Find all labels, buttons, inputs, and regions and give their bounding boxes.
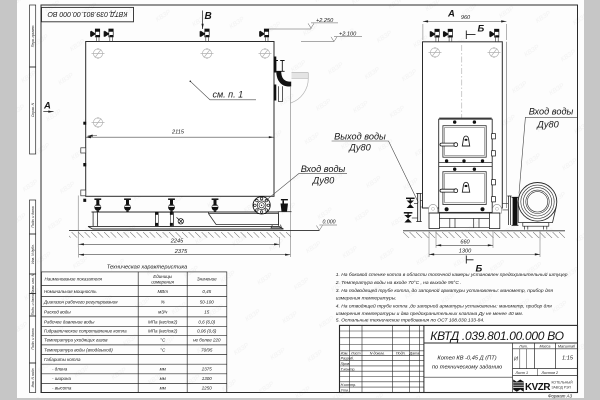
svg-text:50-100: 50-100: [200, 299, 215, 304]
svg-text:°С: °С: [160, 338, 166, 343]
svg-text:Температура воды (вход/выход): Температура воды (вход/выход): [44, 347, 113, 352]
svg-text:Масштаб: Масштаб: [558, 345, 576, 349]
svg-text:3. На подводящей трубе котла,: 3. На подводящей трубе котла, до запорно…: [336, 287, 554, 294]
svg-text:Диапазон рабочего регулировани: Диапазон рабочего регулирования: [43, 299, 118, 304]
svg-text:Ду80: Ду80: [312, 176, 335, 186]
svg-text:Подп. и дата: Подп. и дата: [31, 294, 35, 315]
svg-text:мм: мм: [160, 376, 166, 381]
svg-text:- длина: - длина: [52, 367, 68, 372]
svg-text:МВт: МВт: [157, 289, 168, 294]
svg-text:Котел КВ -0,45 Д (ПТ): Котел КВ -0,45 Д (ПТ): [437, 356, 496, 362]
svg-text:Формат А3: Формат А3: [548, 394, 573, 399]
svg-text:4. На отводящей трубе котла ,: 4. На отводящей трубе котла ,до запорной…: [336, 303, 552, 310]
svg-text:Вход воды: Вход воды: [529, 107, 574, 117]
svg-text:МПа (кгс/см2): МПа (кгс/см2): [148, 320, 178, 325]
svg-text:Инв. N подл.: Инв. N подл.: [31, 368, 35, 388]
svg-text:Наименование показателя: Наименование показателя: [45, 277, 103, 282]
svg-text:Подп. и дата: Подп. и дата: [31, 206, 35, 227]
svg-text:Инв. N дубл.: Инв. N дубл.: [31, 244, 35, 264]
svg-text:измерения: измерения: [151, 280, 174, 285]
svg-text:2245: 2245: [170, 239, 184, 245]
svg-text:Техническая характеристика: Техническая характеристика: [107, 265, 188, 271]
svg-text:2115: 2115: [171, 130, 185, 136]
svg-text:А: А: [43, 101, 51, 112]
svg-text:В: В: [205, 11, 212, 22]
svg-text:Справ. N: Справ. N: [31, 102, 35, 117]
svg-text:см. п. 1: см. п. 1: [213, 89, 244, 99]
svg-text:Б: Б: [478, 24, 485, 35]
svg-text:1300: 1300: [459, 249, 472, 255]
svg-text:Подп. и дата: Подп. и дата: [31, 328, 35, 349]
svg-text:0,45: 0,45: [202, 289, 211, 294]
svg-text:не более 220: не более 220: [193, 338, 221, 343]
svg-text:Перв. примен.: Перв. примен.: [31, 25, 35, 48]
svg-text:А: А: [447, 8, 455, 19]
svg-text:Значение: Значение: [197, 277, 217, 282]
svg-text:Н.контр.: Н.контр.: [341, 383, 357, 387]
svg-text:м3/ч: м3/ч: [158, 310, 168, 315]
svg-text:Подп.: Подп.: [396, 351, 406, 355]
svg-text:мм: мм: [160, 367, 166, 372]
svg-text:Вход воды: Вход воды: [301, 164, 346, 174]
svg-text:измерения температуры.: измерения температуры.: [336, 297, 397, 302]
svg-text:Пров.: Пров.: [341, 362, 351, 366]
svg-text:1300: 1300: [202, 376, 213, 381]
svg-text:KVZR: KVZR: [525, 382, 550, 393]
svg-text:ЗАВОД РЭП: ЗАВОД РЭП: [552, 386, 572, 390]
svg-text:Дата: Дата: [409, 351, 420, 355]
svg-text:Взам. инв. N: Взам. инв. N: [31, 273, 35, 293]
svg-text:2375: 2375: [201, 367, 213, 372]
svg-text:15: 15: [204, 310, 210, 315]
svg-text:N докум.: N докум.: [370, 351, 385, 355]
svg-text:Ду80: Ду80: [536, 120, 559, 130]
svg-text:2250: 2250: [201, 385, 213, 390]
svg-text:измерения температуры и два пр: измерения температуры и два предохраните…: [336, 311, 523, 317]
svg-text:Лит.: Лит.: [518, 345, 528, 349]
svg-text:по техническому заданию: по техническому заданию: [432, 364, 503, 370]
svg-text:Единицы: Единицы: [153, 274, 173, 279]
svg-text:И: И: [514, 357, 518, 363]
svg-text:- ширина: - ширина: [52, 376, 71, 381]
svg-text:МПа (кгс/см2): МПа (кгс/см2): [148, 329, 178, 334]
svg-text:960: 960: [461, 15, 471, 21]
svg-text:Габариты котла: Габариты котла: [44, 357, 81, 362]
svg-text:Температура уходящих газов: Температура уходящих газов: [44, 338, 108, 343]
svg-text:1. На боковой стенке котла в: 1. На боковой стенке котла в области топ…: [336, 271, 568, 278]
svg-text:КОТЕЛЬНЫЙ: КОТЕЛЬНЫЙ: [552, 381, 574, 385]
svg-text:0,06 (0,6): 0,06 (0,6): [197, 329, 217, 334]
svg-text:660: 660: [460, 240, 470, 246]
svg-text:0.000: 0.000: [323, 219, 336, 225]
svg-text:%: %: [161, 299, 165, 304]
svg-text:+2.250: +2.250: [316, 18, 334, 24]
svg-text:5. Остальные технические треб: 5. Остальные технические требования по О…: [336, 318, 485, 324]
svg-text:Изм.: Изм.: [341, 351, 349, 355]
svg-text:1:15: 1:15: [562, 356, 574, 362]
svg-text:КВТД .039.801.00.000 ВО: КВТД .039.801.00.000 ВО: [430, 329, 563, 343]
svg-text:0,6 (6,0): 0,6 (6,0): [198, 320, 215, 325]
svg-text:Лист 1: Лист 1: [515, 371, 529, 375]
svg-text:мм: мм: [160, 385, 166, 390]
svg-text:- высота: - высота: [52, 385, 72, 390]
svg-text:°С: °С: [160, 347, 166, 352]
svg-text:КВТД.039.801.00.000 ВО: КВТД.039.801.00.000 ВО: [47, 10, 127, 17]
svg-text:Ду80: Ду80: [348, 143, 371, 153]
svg-text:Расход воды: Расход воды: [44, 310, 71, 315]
svg-text:Масса: Масса: [540, 345, 551, 349]
svg-text:Рабочее давление воды: Рабочее давление воды: [44, 320, 95, 325]
svg-text:Утв.: Утв.: [341, 389, 349, 393]
svg-text:Разраб.: Разраб.: [341, 357, 354, 361]
svg-text:+2.100: +2.100: [339, 31, 357, 37]
svg-text:Т.контр.: Т.контр.: [341, 367, 356, 371]
svg-text:Лист: Лист: [350, 351, 361, 355]
svg-text:Номинальная мощность: Номинальная мощность: [44, 289, 97, 294]
svg-text:2375: 2375: [174, 249, 188, 255]
svg-text:Выход воды: Выход воды: [334, 131, 386, 141]
svg-text:70/95: 70/95: [201, 347, 213, 352]
svg-text:Гидравлическое сопротивление к: Гидравлическое сопротивление котла: [44, 329, 127, 334]
svg-text:2. Температура воды на входе: 2. Температура воды на входе 70°С , на в…: [335, 280, 462, 286]
svg-text:Листов 2: Листов 2: [541, 371, 559, 375]
